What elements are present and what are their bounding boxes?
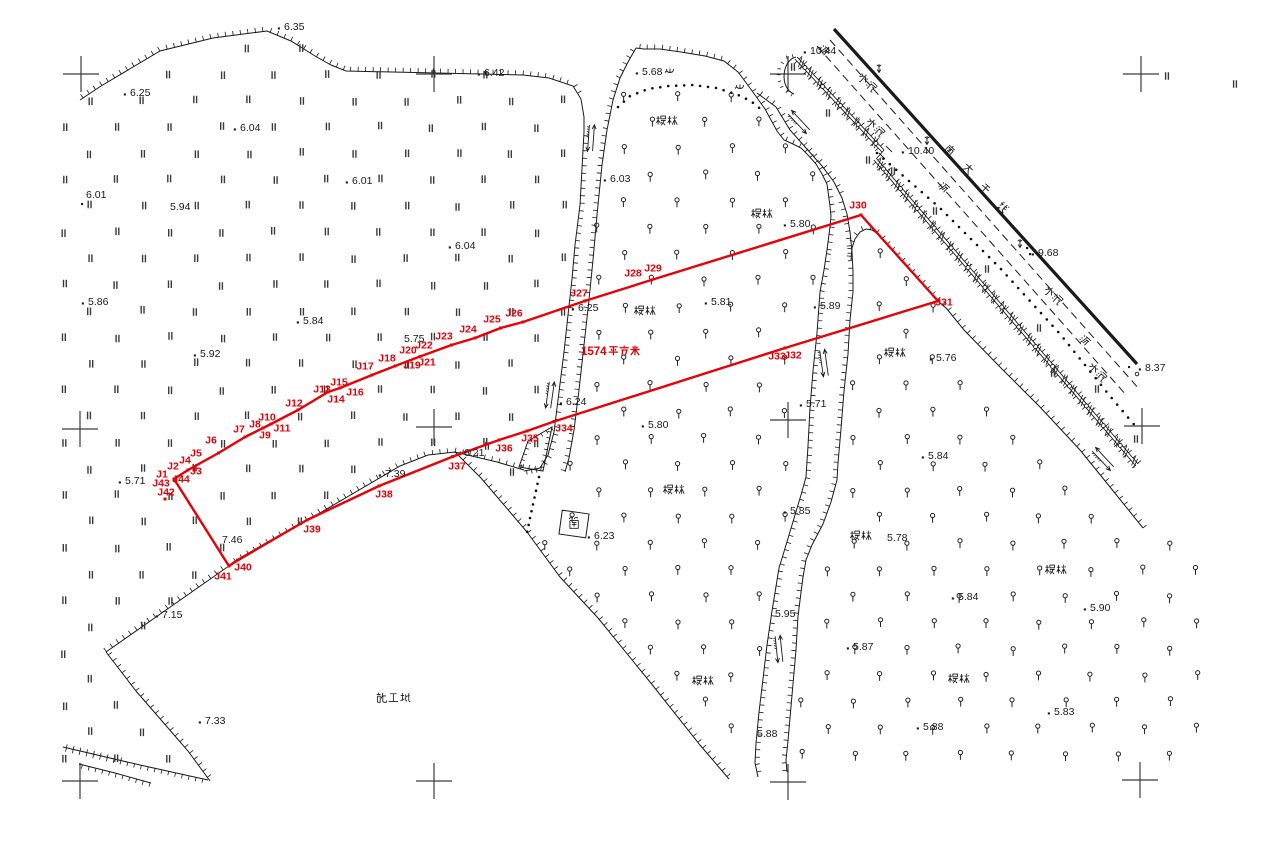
svg-text:5.71: 5.71 xyxy=(806,398,827,410)
svg-text:J39: J39 xyxy=(303,524,321,536)
svg-text:5.92: 5.92 xyxy=(200,348,221,360)
svg-text:J38: J38 xyxy=(375,489,393,501)
svg-text:6.04: 6.04 xyxy=(455,240,476,252)
svg-text:6.25: 6.25 xyxy=(130,87,151,99)
svg-text:J28: J28 xyxy=(624,268,642,280)
svg-text:J12: J12 xyxy=(285,398,303,410)
svg-text:J9: J9 xyxy=(259,430,271,442)
svg-text:J14: J14 xyxy=(327,394,345,406)
svg-text:6.21: 6.21 xyxy=(464,447,485,459)
svg-text:5.84: 5.84 xyxy=(928,450,949,462)
svg-text:J37: J37 xyxy=(448,461,466,473)
svg-text:5.84: 5.84 xyxy=(303,315,324,327)
svg-text:J29: J29 xyxy=(644,263,662,275)
svg-text:5.95: 5.95 xyxy=(775,608,796,620)
svg-text:J21: J21 xyxy=(418,357,436,369)
svg-text:5.78: 5.78 xyxy=(887,532,908,544)
svg-text:J41: J41 xyxy=(214,571,232,583)
svg-text:J35: J35 xyxy=(521,433,539,445)
svg-text:7.39: 7.39 xyxy=(385,468,406,480)
svg-text:5.68: 5.68 xyxy=(642,66,663,78)
svg-text:J16: J16 xyxy=(346,387,364,399)
svg-text:6.01: 6.01 xyxy=(86,189,107,201)
svg-text:5.90: 5.90 xyxy=(1090,602,1111,614)
svg-text:J30: J30 xyxy=(849,200,867,212)
svg-text:6.04: 6.04 xyxy=(240,122,261,134)
svg-text:5.86: 5.86 xyxy=(88,296,109,308)
svg-text:J18: J18 xyxy=(378,353,396,365)
svg-text:5.85: 5.85 xyxy=(790,505,811,517)
svg-text:J5: J5 xyxy=(190,448,202,460)
svg-text:5.84: 5.84 xyxy=(958,591,979,603)
svg-text:5.89: 5.89 xyxy=(820,300,841,312)
svg-text:J7: J7 xyxy=(233,424,245,436)
svg-text:J42: J42 xyxy=(157,487,175,499)
svg-text:J32: J32 xyxy=(784,350,802,362)
svg-text:7.33: 7.33 xyxy=(205,715,226,727)
svg-text:6.03: 6.03 xyxy=(610,173,631,185)
svg-text:5.87: 5.87 xyxy=(853,641,874,653)
svg-text:5.71: 5.71 xyxy=(125,475,146,487)
svg-text:J3: J3 xyxy=(190,466,202,478)
svg-text:J6: J6 xyxy=(205,435,217,447)
svg-text:J34: J34 xyxy=(555,423,573,435)
svg-text:5.80: 5.80 xyxy=(648,419,669,431)
svg-text:8.37: 8.37 xyxy=(1145,362,1166,374)
svg-text:J17: J17 xyxy=(356,361,374,373)
svg-text:J31: J31 xyxy=(935,297,953,309)
svg-text:6.35: 6.35 xyxy=(284,21,305,33)
svg-text:5.81: 5.81 xyxy=(711,296,732,308)
svg-text:5.88: 5.88 xyxy=(757,728,778,740)
svg-text:1574: 1574 xyxy=(581,346,607,358)
svg-text:6.42: 6.42 xyxy=(484,67,505,79)
svg-text:J2: J2 xyxy=(167,461,179,473)
svg-text:5.83: 5.83 xyxy=(1054,706,1075,718)
svg-text:7.15: 7.15 xyxy=(162,609,183,621)
svg-text:5.88: 5.88 xyxy=(923,721,944,733)
svg-text:6.23: 6.23 xyxy=(594,530,615,542)
svg-text:J26: J26 xyxy=(505,308,523,320)
svg-text:5.76: 5.76 xyxy=(936,352,957,364)
svg-text:J25: J25 xyxy=(483,314,501,326)
svg-text:J44: J44 xyxy=(172,474,190,486)
svg-text:6.01: 6.01 xyxy=(352,175,373,187)
svg-text:10.44: 10.44 xyxy=(810,45,836,57)
svg-text:6.24: 6.24 xyxy=(566,396,587,408)
svg-text:J27: J27 xyxy=(570,288,588,300)
svg-text:J23: J23 xyxy=(435,331,453,343)
svg-text:J36: J36 xyxy=(495,443,513,455)
svg-text:9.68: 9.68 xyxy=(1038,247,1059,259)
svg-text:J24: J24 xyxy=(459,324,477,336)
svg-text:J11: J11 xyxy=(274,423,291,435)
svg-text:J40: J40 xyxy=(234,562,252,574)
svg-text:10.40: 10.40 xyxy=(908,145,934,157)
svg-text:7.46: 7.46 xyxy=(222,534,243,546)
svg-text:5.75: 5.75 xyxy=(404,333,425,345)
svg-text:5.94: 5.94 xyxy=(170,201,191,213)
svg-text:5.80: 5.80 xyxy=(790,218,811,230)
svg-text:6.25: 6.25 xyxy=(578,302,599,314)
